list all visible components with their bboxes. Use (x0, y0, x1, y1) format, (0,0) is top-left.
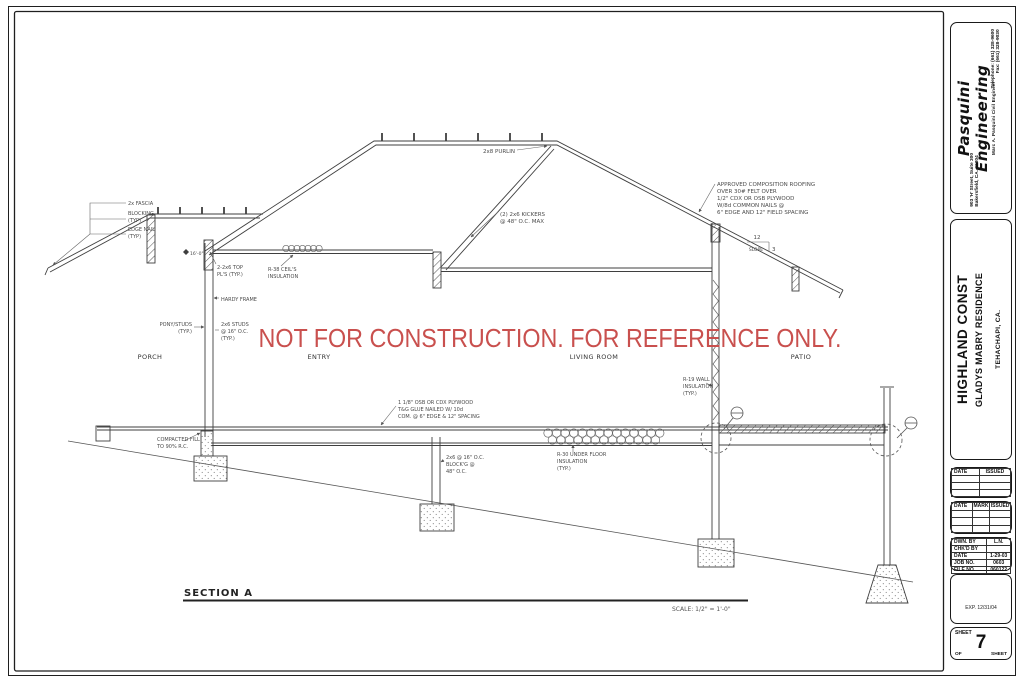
rev2-col-issued: ISSUED (990, 503, 1011, 511)
section-scale: SCALE: 1/2" = 1'-0" (672, 606, 731, 613)
r30-circles (544, 429, 664, 444)
watermark-text: NOT FOR CONSTRUCTION. FOR REFERENCE ONLY… (259, 323, 842, 353)
room-label-patio: PATIO (791, 353, 811, 361)
floor-framing-note: BLOCK'G @ (446, 462, 475, 468)
table-row (952, 518, 1011, 526)
revisions-table-1: DATE ISSUED (950, 467, 1012, 498)
drawing-info-table: DWN. BY L.N. CHK'D BY DATE 1-29-03 JOB N… (950, 537, 1012, 571)
studs-note: (TYP.) (221, 336, 235, 342)
room-label-living: LIVING ROOM (570, 353, 619, 361)
fascia-note: EDGE NAIL (128, 227, 155, 233)
roofing-note: APPROVED COMPOSITION ROOFING (717, 182, 815, 188)
table-row (952, 483, 1011, 490)
hardy-frame-note: HARDY FRAME (221, 297, 257, 303)
room-labels: PORCH ENTRY LIVING ROOM PATIO (138, 353, 812, 361)
titleblock-firm-box: Pasquini Engineering Marc A. Pasquini Ci… (950, 22, 1012, 214)
drawn-by-label: DWN. BY (952, 539, 987, 546)
date-value: 1-29-03 (987, 553, 1011, 560)
kickers-note: (2) 2x6 KICKERS (500, 212, 546, 218)
rev1-col-issued: ISSUED (979, 469, 1010, 476)
rev1-col-date: DATE (952, 469, 980, 476)
roofing-note: W/8d COMMON NAILS @ (717, 203, 785, 209)
rev2-col-date: DATE (952, 503, 973, 511)
table-row (952, 490, 1011, 497)
table-row: CHK'D BY (952, 546, 1011, 553)
pony-studs-note: (TYP.) (178, 329, 192, 335)
r19-note: R-19 WALL (683, 377, 710, 383)
firm-address-line2: Bakersfield, CA. 93304 (975, 153, 980, 207)
table-row: FILE NO. 060122 (952, 567, 1011, 574)
grade-line (68, 441, 913, 582)
fascia-note: BLOCKING (128, 211, 154, 217)
room-label-porch: PORCH (138, 353, 163, 361)
roofing-note: 1/2" CDX OR OSB PLYWOOD (717, 196, 794, 202)
porch-blocking-ticks (158, 207, 246, 214)
section-drawing: 16'-0" 2x FASCIA BLOCKING (TYP) EDGE NAI… (0, 0, 1024, 682)
table-row: JOB NO. 0603 (952, 560, 1011, 567)
revisions-table-2: DATE MARK ISSUED (950, 501, 1012, 534)
table-row: DATE 1-29-03 (952, 553, 1011, 560)
sheet-of-label: OF (955, 652, 962, 657)
drawing-sheet: 16'-0" 2x FASCIA BLOCKING (TYP) EDGE NAI… (0, 0, 1024, 682)
slope-rise: 3 (772, 247, 776, 253)
r30-note: (TYP.) (557, 466, 571, 472)
roofing-note: OVER 30# FELT OVER (717, 189, 777, 195)
slope-word: SLOPE (749, 247, 763, 253)
job-no-value: 0603 (987, 560, 1011, 567)
sheet-number-box: SHEET 7 OF SHEET (950, 627, 1012, 660)
floor-framing-note: 2x6 @ 16" O.C. (446, 455, 485, 461)
checked-by-label: CHK'D BY (952, 546, 987, 553)
table-row: DWN. BY L.N. (952, 539, 1011, 546)
firm-fax: Fax: (661) 328-9030 (996, 29, 1001, 88)
subfloor-note: 1 1/8" OSB OR CDX PLYWOOD (398, 400, 473, 406)
kickers-note: @ 48" O.C. MAX (500, 219, 544, 225)
r19-note: (TYP.) (683, 391, 697, 397)
roof-blocking-ticks (382, 133, 542, 141)
r19-note: INSULATION (683, 384, 713, 390)
r30-note: R-30 UNDER FLOOR (557, 452, 607, 458)
fascia-note: 2x FASCIA (128, 201, 154, 207)
floor-framing-note: 48" O.C. (446, 469, 467, 475)
roofing-note: 6" EDGE AND 12" FIELD SPACING (717, 210, 808, 216)
job-no-label: JOB NO. (952, 560, 987, 567)
top-plates-note: PL'S (TYP.) (217, 272, 243, 278)
project-location: TEHACHAPI, CA. (995, 220, 1002, 459)
r30-note: INSULATION (557, 459, 587, 465)
r38-coil (283, 245, 322, 251)
table-row (952, 525, 1011, 533)
purlin-note: 2x8 PURLIN (483, 149, 515, 155)
table-row (952, 510, 1011, 518)
section-title: SECTION A (184, 588, 253, 599)
section-title-block: SECTION A SCALE: 1/2" = 1'-0" (183, 588, 748, 613)
r38-note: INSULATION (268, 274, 298, 280)
compacted-fill-note: COMPACTED FILL (157, 437, 200, 443)
stamp-expiration: EXP. 12/31/04 (951, 605, 1011, 611)
subfloor-note: T&G GLUE NAILED W/ 10d (397, 407, 463, 413)
project-client: HIGHLAND CONST (955, 220, 970, 459)
top-plates-note: 2-2x6 TOP (217, 265, 243, 271)
engineer-stamp-box: EXP. 12/31/04 (950, 574, 1012, 624)
studs-note: @ 16" O.C. (221, 329, 249, 335)
r38-note: R-38 CEIL'S (268, 267, 297, 273)
table-row (952, 476, 1011, 483)
pony-studs-note: PONY/STUDS (160, 322, 192, 328)
elev-marker-text: 16'-0" (190, 251, 204, 257)
sheet-sheets-label: SHEET (991, 652, 1007, 657)
elevation-datum-icon (183, 249, 189, 255)
firm-phone-fax: Telephone: (661) 328-9600 Fax: (661) 328… (991, 29, 1001, 88)
room-label-entry: ENTRY (307, 353, 330, 361)
fascia-note: (TYP) (128, 234, 141, 240)
fascia-note: (TYP) (128, 218, 141, 224)
project-residence: GLADYS MABRY RESIDENCE (974, 220, 984, 459)
checked-by-value (987, 546, 1011, 553)
studs-note: 2x6 STUDS (221, 322, 249, 328)
date-label: DATE (952, 553, 987, 560)
compacted-fill-note: TO 90% R.C. (156, 444, 189, 450)
rev2-col-mark: MARK (972, 503, 990, 511)
drawn-by-value: L.N. (987, 539, 1011, 546)
slope-run: 12 (754, 235, 761, 241)
file-no-label: FILE NO. (952, 567, 987, 574)
titleblock-project-box: HIGHLAND CONST GLADYS MABRY RESIDENCE TE… (950, 219, 1012, 460)
firm-address: 903 'H' Street, Suite 300 Bakersfield, C… (970, 153, 980, 207)
subfloor-note: COM. @ 6" EDGE & 12" SPACING (398, 414, 480, 420)
foundation (194, 431, 908, 603)
file-no-value: 060122 (987, 567, 1011, 574)
sheet-number: 7 (951, 632, 1011, 654)
